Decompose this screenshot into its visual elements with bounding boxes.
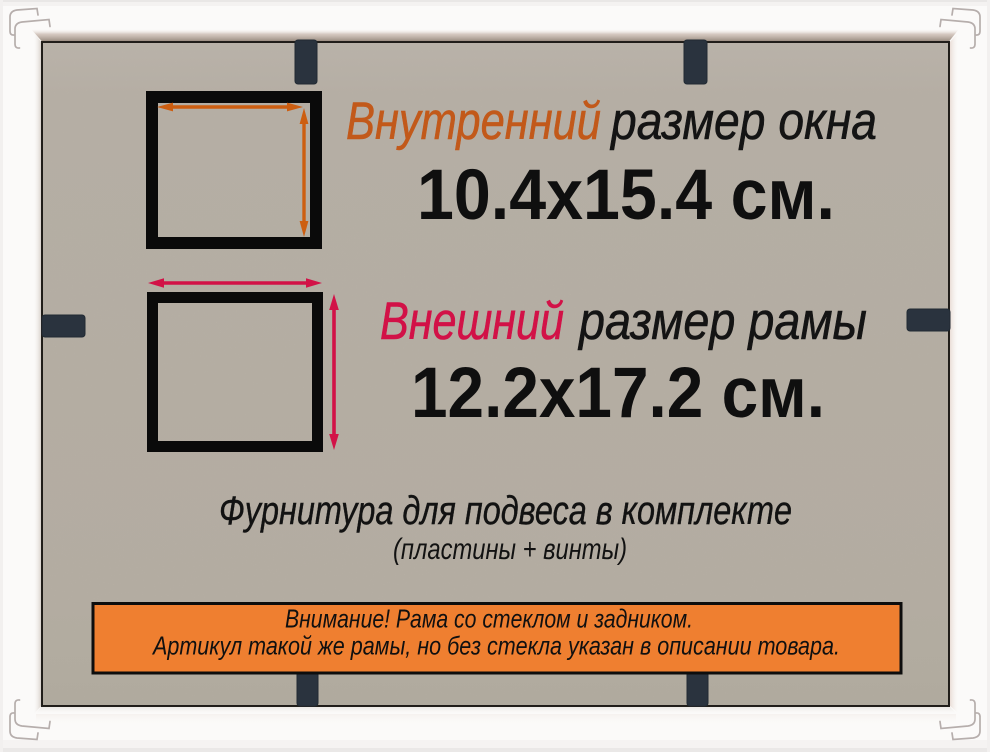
svg-text:10.4x15.4 см.: 10.4x15.4 см.	[417, 155, 835, 235]
svg-text:Фурнитура для подвеса в компле: Фурнитура для подвеса в комплекте	[219, 489, 792, 533]
svg-text:Внешний: Внешний	[380, 292, 564, 351]
svg-text:размер рамы: размер рамы	[577, 292, 867, 351]
svg-text:размер окна: размер окна	[609, 92, 877, 151]
svg-text:(пластины + винты): (пластины + винты)	[393, 533, 627, 566]
svg-text:Внимание! Рама со стеклом и за: Внимание! Рама со стеклом и задником.	[285, 604, 693, 634]
svg-text:Внутренний: Внутренний	[346, 92, 601, 151]
svg-text:Артикул такой же рамы, но без: Артикул такой же рамы, но без стекла ука…	[151, 631, 840, 661]
svg-text:12.2x17.2 см.: 12.2x17.2 см.	[411, 353, 825, 433]
